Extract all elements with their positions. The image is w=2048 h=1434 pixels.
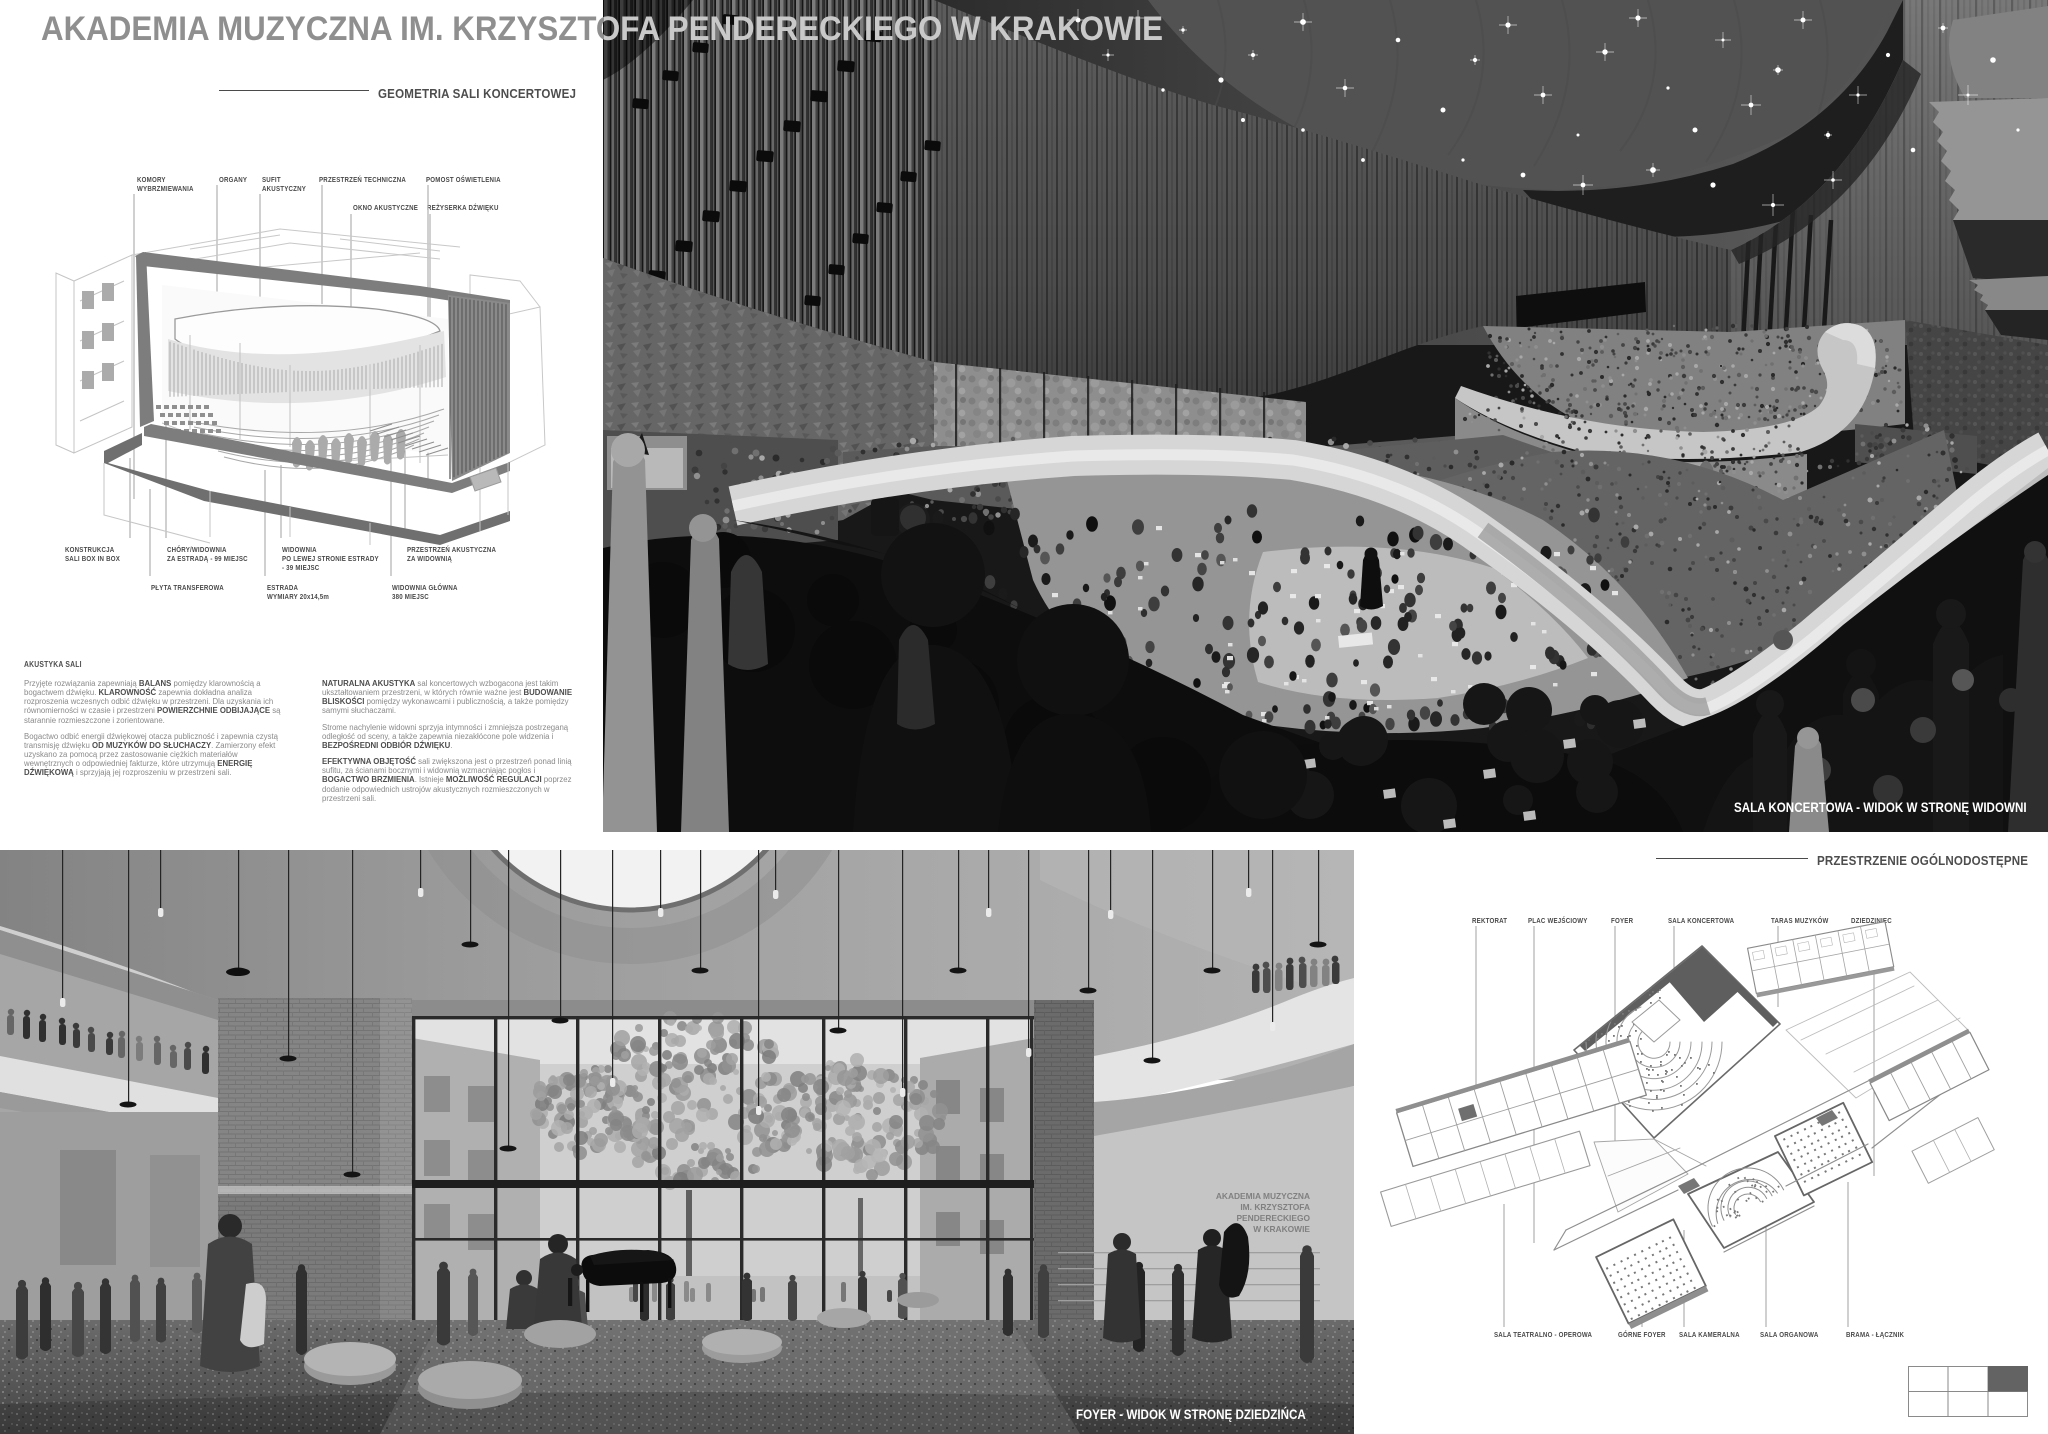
svg-text:W KRAKOWIE: W KRAKOWIE (1253, 1224, 1310, 1234)
svg-text:IM. KRZYSZTOFA: IM. KRZYSZTOFA (1240, 1202, 1310, 1212)
svg-text:PENDERECKIEGO: PENDERECKIEGO (1236, 1213, 1310, 1223)
svg-text:AKADEMIA MUZYCZNA: AKADEMIA MUZYCZNA (1216, 1191, 1310, 1201)
